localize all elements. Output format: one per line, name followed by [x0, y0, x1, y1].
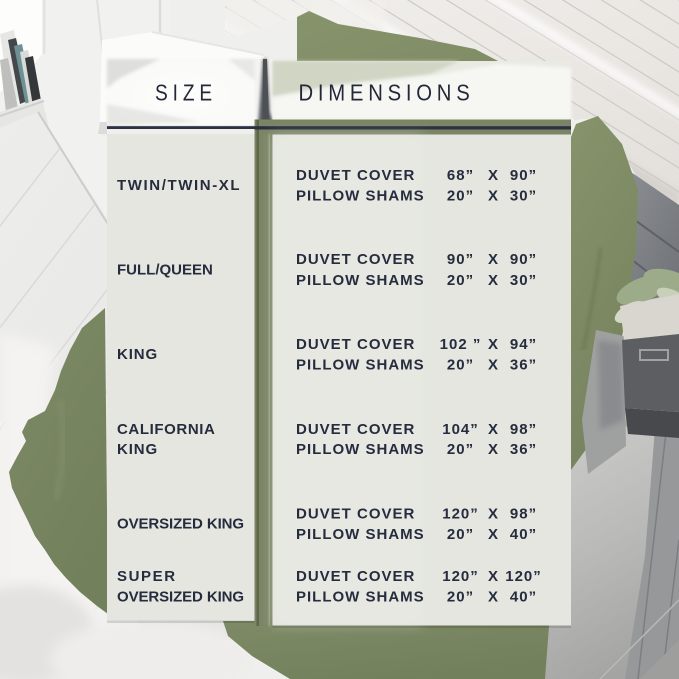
svg-text:OVERSIZED KING: OVERSIZED KING [117, 516, 244, 533]
svg-text:X: X [488, 336, 499, 353]
svg-text:X: X [488, 357, 499, 374]
svg-text:40”: 40” [510, 526, 537, 543]
svg-text:SIZE: SIZE [155, 80, 217, 106]
svg-text:X: X [488, 526, 499, 543]
svg-text:98”: 98” [510, 421, 537, 438]
svg-text:PILLOW SHAMS: PILLOW SHAMS [296, 526, 425, 543]
svg-text:CALIFORNIA: CALIFORNIA [117, 421, 216, 438]
svg-text:36”: 36” [510, 357, 537, 374]
svg-text:SUPER: SUPER [117, 568, 177, 585]
svg-text:120”: 120” [442, 506, 479, 523]
svg-text:20”: 20” [447, 272, 474, 289]
svg-text:90”: 90” [510, 167, 537, 184]
svg-text:X: X [488, 272, 499, 289]
svg-text:X: X [488, 589, 499, 606]
svg-text:90”: 90” [447, 251, 474, 268]
svg-text:KING: KING [117, 346, 158, 363]
svg-text:20”: 20” [447, 526, 474, 543]
svg-text:20”: 20” [447, 589, 474, 606]
svg-text:X: X [488, 251, 499, 268]
svg-text:98”: 98” [510, 506, 537, 523]
svg-text:X: X [488, 506, 499, 523]
svg-text:20”: 20” [447, 188, 474, 205]
svg-text:102 ”: 102 ” [440, 336, 482, 353]
svg-text:DIMENSIONS: DIMENSIONS [299, 80, 475, 106]
svg-text:FULL/QUEEN: FULL/QUEEN [117, 261, 213, 278]
svg-text:90”: 90” [510, 251, 537, 268]
svg-text:PILLOW SHAMS: PILLOW SHAMS [296, 188, 425, 205]
svg-text:104”: 104” [442, 421, 479, 438]
svg-text:DUVET COVER: DUVET COVER [296, 336, 415, 353]
svg-text:X: X [488, 421, 499, 438]
svg-text:OVERSIZED KING: OVERSIZED KING [117, 589, 244, 606]
svg-text:DUVET COVER: DUVET COVER [296, 167, 415, 184]
svg-text:40”: 40” [510, 589, 537, 606]
svg-text:120”: 120” [442, 568, 479, 585]
svg-text:30”: 30” [510, 272, 537, 289]
svg-text:DUVET COVER: DUVET COVER [296, 568, 415, 585]
svg-text:DUVET COVER: DUVET COVER [296, 506, 415, 523]
svg-text:30”: 30” [510, 188, 537, 205]
svg-text:X: X [488, 441, 499, 458]
svg-text:120”: 120” [505, 568, 542, 585]
svg-text:36”: 36” [510, 441, 537, 458]
svg-text:PILLOW SHAMS: PILLOW SHAMS [296, 589, 425, 606]
svg-text:TWIN/TWIN-XL: TWIN/TWIN-XL [117, 177, 241, 194]
svg-text:DUVET COVER: DUVET COVER [296, 421, 415, 438]
svg-text:KING: KING [117, 441, 158, 458]
svg-text:20”: 20” [447, 441, 474, 458]
svg-text:94”: 94” [510, 336, 537, 353]
svg-text:PILLOW SHAMS: PILLOW SHAMS [296, 357, 425, 374]
svg-text:X: X [488, 188, 499, 205]
svg-text:X: X [488, 167, 499, 184]
svg-text:20”: 20” [447, 357, 474, 374]
svg-text:DUVET COVER: DUVET COVER [296, 251, 415, 268]
svg-text:68”: 68” [447, 167, 474, 184]
svg-text:PILLOW SHAMS: PILLOW SHAMS [296, 272, 425, 289]
svg-text:PILLOW SHAMS: PILLOW SHAMS [296, 441, 425, 458]
svg-text:X: X [488, 568, 499, 585]
